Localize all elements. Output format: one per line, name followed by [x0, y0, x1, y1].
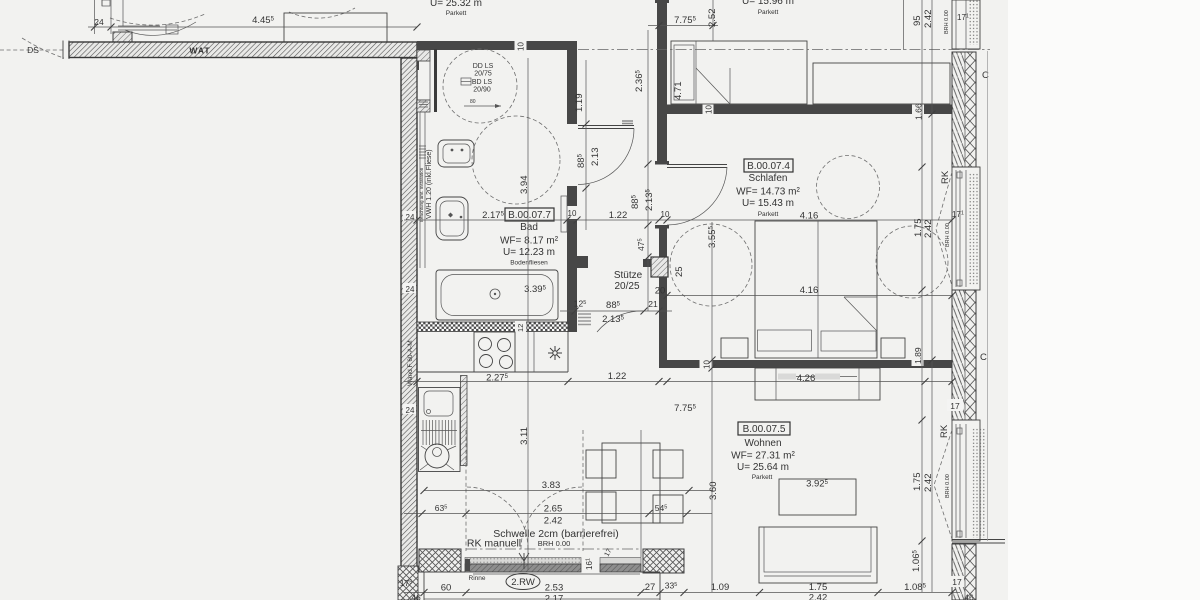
svg-text:RK: RK — [939, 424, 950, 438]
svg-text:20/75: 20/75 — [474, 71, 492, 78]
svg-text:17: 17 — [952, 577, 962, 587]
svg-text:20/25: 20/25 — [614, 281, 639, 292]
svg-text:2.42: 2.42 — [923, 10, 934, 29]
svg-text:RK manuell: RK manuell — [467, 538, 521, 550]
svg-text:Wand F 60-A-M: Wand F 60-A-M — [407, 340, 414, 386]
svg-text:46: 46 — [964, 593, 974, 600]
svg-text:1.75: 1.75 — [809, 582, 828, 593]
svg-text:BRH 0.00: BRH 0.00 — [945, 474, 951, 498]
svg-text:27: 27 — [645, 582, 656, 593]
svg-text:DD LS: DD LS — [473, 63, 494, 70]
svg-text:VWH 1.20 (inkl.Fliese): VWH 1.20 (inkl.Fliese) — [426, 149, 433, 219]
svg-text:2.42: 2.42 — [544, 516, 563, 527]
svg-text:3.83: 3.83 — [542, 480, 561, 491]
svg-text:24: 24 — [406, 213, 415, 222]
svg-text:1.22: 1.22 — [608, 371, 627, 382]
svg-text:4.71: 4.71 — [673, 82, 684, 101]
svg-text:WF= 27.31 m²: WF= 27.31 m² — [731, 451, 795, 462]
svg-text:80: 80 — [470, 99, 476, 105]
svg-text:10: 10 — [703, 360, 712, 369]
svg-text:BRH 0.00: BRH 0.00 — [945, 223, 951, 247]
svg-text:Parkett: Parkett — [752, 474, 773, 481]
svg-text:B.00.07.5: B.00.07.5 — [743, 424, 786, 435]
svg-text:Bad: Bad — [520, 222, 538, 233]
svg-text:24: 24 — [94, 17, 104, 27]
svg-text:U= 25.32 m: U= 25.32 m — [430, 0, 482, 9]
svg-text:60: 60 — [441, 583, 452, 594]
svg-text:Bodenfliesen: Bodenfliesen — [510, 260, 548, 267]
svg-text:U= 12.23 m: U= 12.23 m — [503, 247, 555, 258]
svg-text:4.16: 4.16 — [800, 211, 819, 222]
svg-text:10: 10 — [568, 209, 577, 218]
svg-text:2.42: 2.42 — [923, 220, 934, 239]
svg-text:2.52: 2.52 — [707, 9, 718, 28]
svg-text:1.09: 1.09 — [711, 582, 730, 593]
svg-text:U= 15.43 m: U= 15.43 m — [742, 198, 794, 209]
svg-text:3.11: 3.11 — [519, 427, 530, 445]
svg-text:2.53: 2.53 — [545, 583, 564, 594]
svg-text:C: C — [982, 70, 989, 81]
svg-text:2.42: 2.42 — [923, 474, 934, 493]
svg-text:3.60: 3.60 — [708, 482, 719, 501]
svg-text:U= 15.96 m: U= 15.96 m — [742, 0, 794, 7]
svg-text:2.42: 2.42 — [809, 593, 828, 600]
svg-text:46: 46 — [411, 593, 421, 600]
svg-text:1.19: 1.19 — [574, 94, 585, 113]
svg-text:20/90: 20/90 — [473, 87, 491, 94]
svg-text:BRH 0.00: BRH 0.00 — [538, 539, 571, 548]
svg-text:2.17: 2.17 — [545, 594, 564, 600]
svg-text:Wohnen: Wohnen — [744, 438, 781, 449]
svg-text:WAT: WAT — [189, 46, 210, 56]
svg-text:20: 20 — [655, 286, 666, 297]
svg-text:Rinne: Rinne — [469, 575, 486, 582]
svg-text:10: 10 — [661, 210, 670, 219]
svg-text:Stütze: Stütze — [614, 270, 643, 281]
svg-text:Parkett: Parkett — [758, 211, 779, 218]
svg-text:4.26: 4.26 — [797, 373, 816, 384]
svg-text:12: 12 — [516, 324, 525, 332]
svg-text:2.65: 2.65 — [544, 504, 563, 515]
svg-text:WF= 14.73 m²: WF= 14.73 m² — [736, 187, 800, 198]
svg-text:21: 21 — [648, 299, 658, 309]
svg-text:WF= 8.17 m²: WF= 8.17 m² — [500, 236, 559, 247]
svg-text:BRH 0.00: BRH 0.00 — [944, 10, 950, 34]
svg-text:Parkett: Parkett — [758, 9, 779, 16]
svg-text:Beachtung amt. Installation: Beachtung amt. Installation — [419, 167, 424, 222]
svg-text:24: 24 — [406, 406, 415, 415]
svg-text:B.00.07.7: B.00.07.7 — [508, 210, 551, 221]
svg-text:95: 95 — [912, 15, 923, 26]
svg-text:10: 10 — [705, 105, 714, 114]
svg-text:Schlafen: Schlafen — [749, 173, 788, 184]
svg-text:25: 25 — [674, 266, 685, 277]
svg-text:2.13: 2.13 — [590, 148, 601, 167]
svg-text:U= 25.64 m: U= 25.64 m — [737, 462, 789, 473]
svg-text:24: 24 — [406, 285, 415, 294]
svg-text:B.00.07.4: B.00.07.4 — [747, 161, 790, 172]
svg-text:DS: DS — [27, 45, 39, 55]
svg-text:17: 17 — [950, 401, 960, 411]
svg-text:2.RW: 2.RW — [511, 577, 535, 588]
svg-text:4.16: 4.16 — [800, 285, 819, 296]
svg-text:BD LS: BD LS — [472, 79, 493, 86]
svg-text:1.75: 1.75 — [912, 473, 923, 492]
svg-text:1.89: 1.89 — [913, 347, 923, 364]
svg-text:10: 10 — [517, 42, 526, 51]
svg-text:Parkett: Parkett — [446, 10, 467, 17]
svg-text:1.22: 1.22 — [609, 210, 628, 221]
svg-text:C: C — [980, 352, 987, 363]
svg-text:RK: RK — [940, 170, 951, 184]
